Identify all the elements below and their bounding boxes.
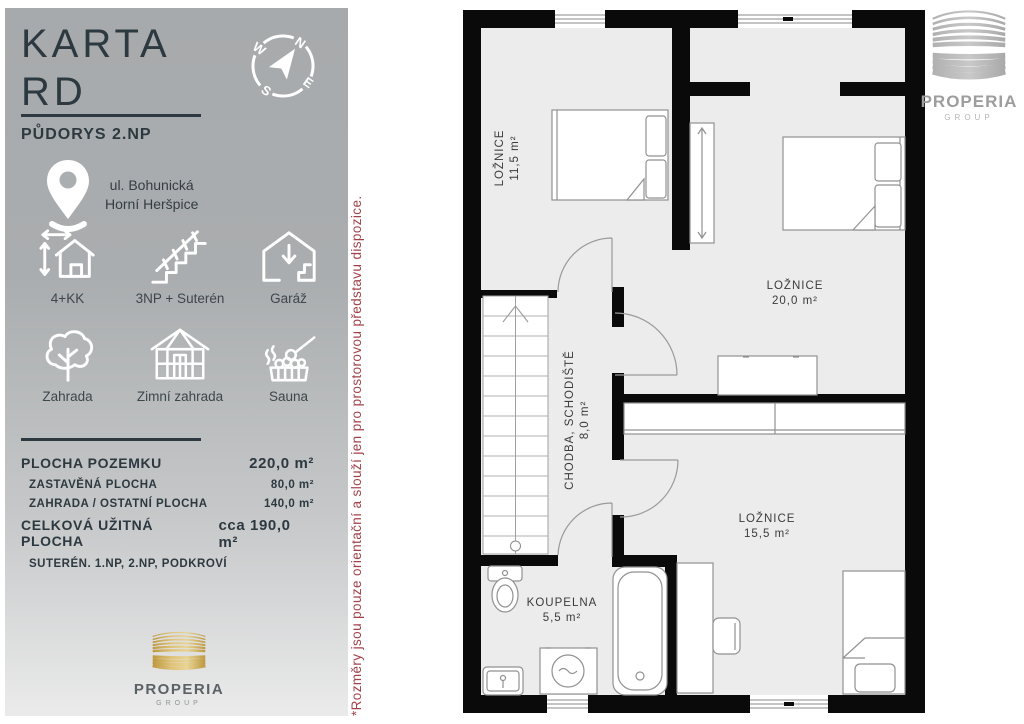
properia-logo-sub: GROUP — [916, 113, 1022, 122]
area-label: SUTERÉN. 1.NP, 2.NP, PODKROVÍ — [29, 558, 227, 570]
properia-logo-sub: GROUP — [119, 700, 239, 707]
area-value: 220,0 m² — [249, 455, 314, 472]
page-title: KARTA RD — [21, 20, 171, 116]
house-dimensions-icon — [37, 226, 99, 288]
compass-e-label: E — [300, 74, 316, 91]
compass-icon: N E S W — [245, 28, 321, 104]
feature-floors: 3NP + Suterén — [124, 226, 236, 306]
title-line-1: KARTA — [21, 20, 171, 68]
location-pin-icon — [45, 158, 91, 232]
washing-machine — [540, 648, 597, 694]
builtin-wardrobe — [624, 403, 905, 434]
area-label: ZASTAVĚNÁ PLOCHA — [29, 479, 157, 491]
area-value: 140,0 m² — [264, 498, 314, 510]
properia-logo-icon — [150, 628, 208, 674]
floor-plan: LOŽNICE 11,5 m² LOŽNICE 20,0 m² CHODBA, … — [463, 10, 925, 713]
address-text: ul. Bohunická Horní Heršpice — [105, 176, 198, 214]
double-bed-small-bedroom — [552, 110, 668, 200]
feature-grid: 4+KK 3NP + Suterén Garáž Zahrada — [11, 226, 343, 404]
room-area: 8,0 m² — [578, 350, 593, 490]
properia-logo-name: PROPERIA — [119, 681, 239, 698]
area-label: PLOCHA POZEMKU — [21, 455, 162, 471]
area-label: ZAHRADA / OSTATNÍ PLOCHA — [29, 498, 208, 510]
chair — [713, 618, 740, 654]
feature-sauna: Sauna — [236, 324, 341, 404]
room-label-hallway: CHODBA, SCHODIŠTĚ 8,0 m² — [563, 350, 593, 490]
area-label: CELKOVÁ UŽITNÁ PLOCHA — [21, 517, 218, 549]
stairs-icon — [149, 226, 211, 288]
feature-label: 4+KK — [51, 291, 84, 306]
properia-logo-name: PROPERIA — [916, 92, 1022, 112]
desk — [677, 563, 713, 693]
floor-subtitle: PŮDORYS 2.NP — [21, 126, 152, 144]
divider — [21, 114, 201, 117]
address-line-2: Horní Heršpice — [105, 195, 198, 214]
double-bed-large-bedroom — [783, 137, 905, 230]
table-row: PLOCHA POZEMKU 220,0 m² — [21, 455, 314, 472]
table-row: ZASTAVĚNÁ PLOCHA 80,0 m² — [29, 479, 314, 491]
feature-label: Sauna — [269, 389, 308, 404]
sauna-icon — [258, 324, 320, 386]
address-block: ul. Bohunická Horní Heršpice — [45, 158, 198, 232]
tree-icon — [37, 324, 99, 386]
room-label-bathroom: KOUPELNA 5,5 m² — [527, 596, 598, 626]
table-row: CELKOVÁ UŽITNÁ PLOCHA cca 190,0 m² — [21, 517, 314, 551]
feature-winter-garden: Zimní zahrada — [124, 324, 236, 404]
room-area: 15,5 m² — [739, 527, 796, 542]
properia-logo-gray: PROPERIA GROUP — [916, 4, 1022, 122]
area-table: PLOCHA POZEMKU 220,0 m² ZASTAVĚNÁ PLOCHA… — [21, 450, 314, 577]
feature-label: Zimní zahrada — [137, 389, 223, 404]
properia-logo: PROPERIA GROUP — [119, 628, 239, 707]
garage-icon — [258, 226, 320, 288]
title-line-2: RD — [21, 68, 171, 116]
info-panel: KARTA RD N E S W PŮDORYS 2.NP ul. Bohuni… — [5, 8, 348, 716]
room-area: 11,5 m² — [508, 130, 523, 187]
address-line-1: ul. Bohunická — [105, 176, 198, 195]
feature-label: Zahrada — [42, 389, 92, 404]
feature-garden: Zahrada — [11, 324, 124, 404]
feature-layout: 4+KK — [11, 226, 124, 306]
room-name: KOUPELNA — [527, 596, 598, 611]
room-name: LOŽNICE — [493, 130, 508, 187]
greenhouse-icon — [149, 324, 211, 386]
divider — [21, 438, 201, 441]
room-label-bedroom-bottom: LOŽNICE 15,5 m² — [739, 512, 796, 542]
feature-label: Garáž — [270, 291, 307, 306]
wardrobe-large-bedroom — [690, 123, 714, 243]
room-name: LOŽNICE — [739, 512, 796, 527]
feature-garage: Garáž — [236, 226, 341, 306]
room-area: 20,0 m² — [767, 294, 824, 309]
room-area: 5,5 m² — [527, 611, 598, 626]
room-name: LOŽNICE — [767, 279, 824, 294]
staircase — [483, 296, 548, 554]
feature-label: 3NP + Suterén — [136, 291, 225, 306]
table-row: SUTERÉN. 1.NP, 2.NP, PODKROVÍ — [29, 558, 314, 570]
sink — [483, 667, 523, 695]
disclaimer-note: *Rozměry jsou pouze orientační a slouží … — [349, 12, 365, 716]
single-bed — [843, 571, 905, 694]
area-value: 80,0 m² — [271, 479, 314, 491]
properia-logo-icon — [929, 4, 1009, 86]
room-name: CHODBA, SCHODIŠTĚ — [563, 350, 578, 490]
dresser — [718, 356, 817, 395]
room-label-bedroom-small: LOŽNICE 11,5 m² — [493, 130, 523, 187]
table-row: ZAHRADA / OSTATNÍ PLOCHA 140,0 m² — [29, 498, 314, 510]
bathtub — [613, 567, 667, 695]
room-label-bedroom-large: LOŽNICE 20,0 m² — [767, 279, 824, 309]
area-value: cca 190,0 m² — [218, 517, 314, 551]
